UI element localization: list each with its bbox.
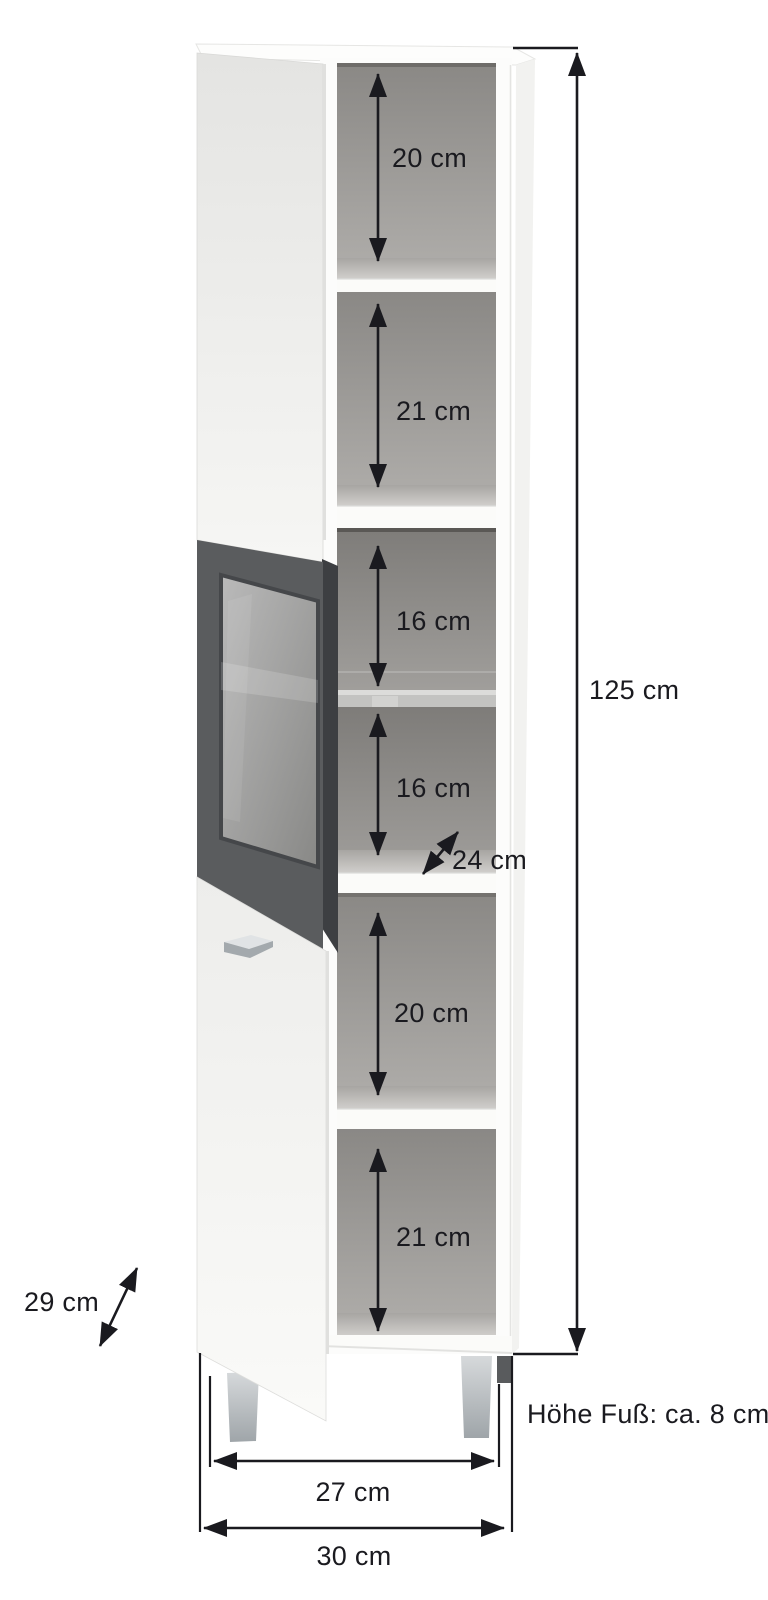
label-compartment-5: 20 cm <box>394 998 469 1029</box>
label-outer-width: 30 cm <box>316 1541 391 1572</box>
dimension-diagram: 20 cm 21 cm 16 cm 16 cm 20 cm 21 cm 24 c… <box>0 0 768 1600</box>
cabinet-doors <box>197 53 338 1421</box>
label-foot-height-note: Höhe Fuß: ca. 8 cm <box>527 1399 768 1430</box>
cabinet-right-side <box>512 59 535 1354</box>
front-right-foot <box>461 1356 492 1438</box>
label-total-height: 125 cm <box>589 675 679 706</box>
glass-shelf <box>337 690 496 707</box>
label-inner-width: 27 cm <box>315 1477 390 1508</box>
glass-door-edge <box>322 559 338 953</box>
bottom-door <box>197 877 326 1421</box>
cabinet-body <box>196 44 535 1442</box>
label-outer-depth: 29 cm <box>24 1287 99 1318</box>
arrow-outer-depth <box>100 1268 137 1346</box>
back-right-foot <box>497 1356 512 1383</box>
shelf-compartments <box>320 63 512 1354</box>
label-inner-depth: 24 cm <box>452 845 527 876</box>
label-compartment-4: 16 cm <box>396 773 471 804</box>
label-compartment-3: 16 cm <box>396 606 471 637</box>
top-door <box>197 53 323 562</box>
cabinet-illustration <box>0 0 768 1600</box>
label-compartment-6: 21 cm <box>396 1222 471 1253</box>
label-compartment-2: 21 cm <box>396 396 471 427</box>
label-compartment-1: 20 cm <box>392 143 467 174</box>
